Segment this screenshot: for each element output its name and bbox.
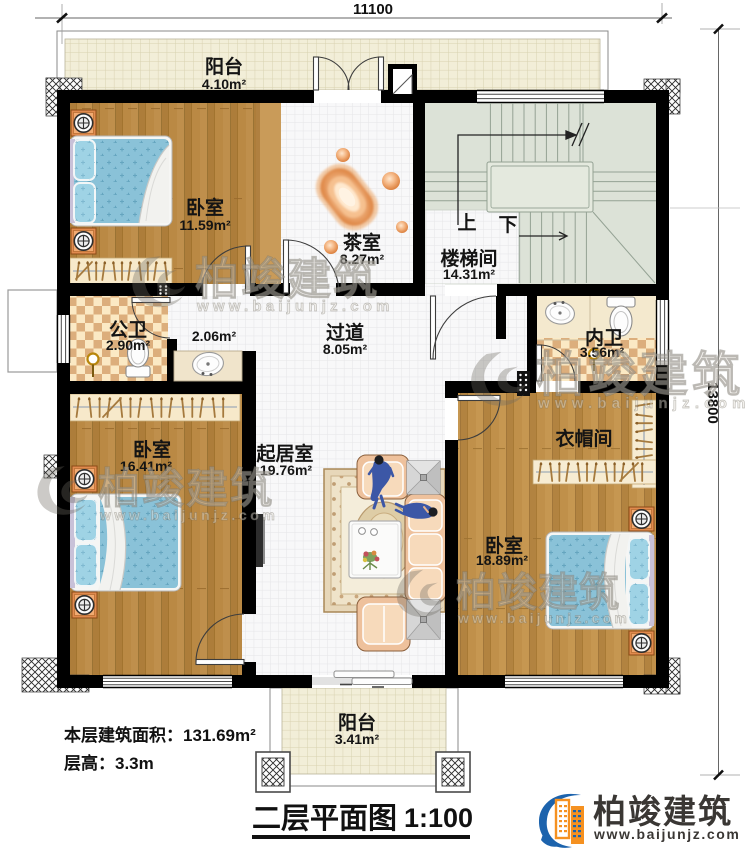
- svg-text:柏竣建筑: 柏竣建筑: [593, 793, 733, 830]
- svg-text:www.baijunjz.com: www.baijunjz.com: [457, 610, 630, 626]
- svg-text:2.90m²: 2.90m²: [106, 337, 151, 353]
- svg-text:2.06m²: 2.06m²: [192, 328, 237, 344]
- svg-text:上: 上: [457, 212, 476, 234]
- svg-text:8.05m²: 8.05m²: [323, 341, 368, 357]
- svg-text:本层建筑面积：131.69m²: 本层建筑面积：131.69m²: [64, 725, 256, 745]
- svg-text:二层平面图: 二层平面图: [252, 803, 397, 835]
- svg-text:3.41m²: 3.41m²: [335, 731, 380, 747]
- svg-text:www.baijunjz.com: www.baijunjz.com: [537, 395, 750, 412]
- svg-text:柏竣建筑: 柏竣建筑: [456, 571, 620, 615]
- svg-text:www.baijunjz.com: www.baijunjz.com: [99, 507, 278, 523]
- svg-text:14.31m²: 14.31m²: [443, 266, 495, 282]
- svg-text:衣帽间: 衣帽间: [555, 427, 612, 450]
- svg-text:11.59m²: 11.59m²: [179, 217, 231, 233]
- svg-text:阳台: 阳台: [205, 55, 243, 78]
- svg-text:www.baijunjz.com: www.baijunjz.com: [593, 826, 740, 842]
- svg-text:1:100: 1:100: [404, 803, 473, 833]
- svg-text:层高：3.3m: 层高：3.3m: [64, 753, 154, 773]
- svg-text:下: 下: [498, 215, 517, 236]
- svg-text:11100: 11100: [353, 1, 393, 18]
- svg-text:4.10m²: 4.10m²: [202, 76, 247, 92]
- svg-text:www.baijunjz.com: www.baijunjz.com: [196, 298, 394, 315]
- svg-text:卧室: 卧室: [186, 196, 224, 219]
- svg-text:18.89m²: 18.89m²: [476, 552, 528, 568]
- svg-text:柏竣建筑: 柏竣建筑: [195, 255, 379, 304]
- svg-text:柏竣建筑: 柏竣建筑: [98, 465, 274, 512]
